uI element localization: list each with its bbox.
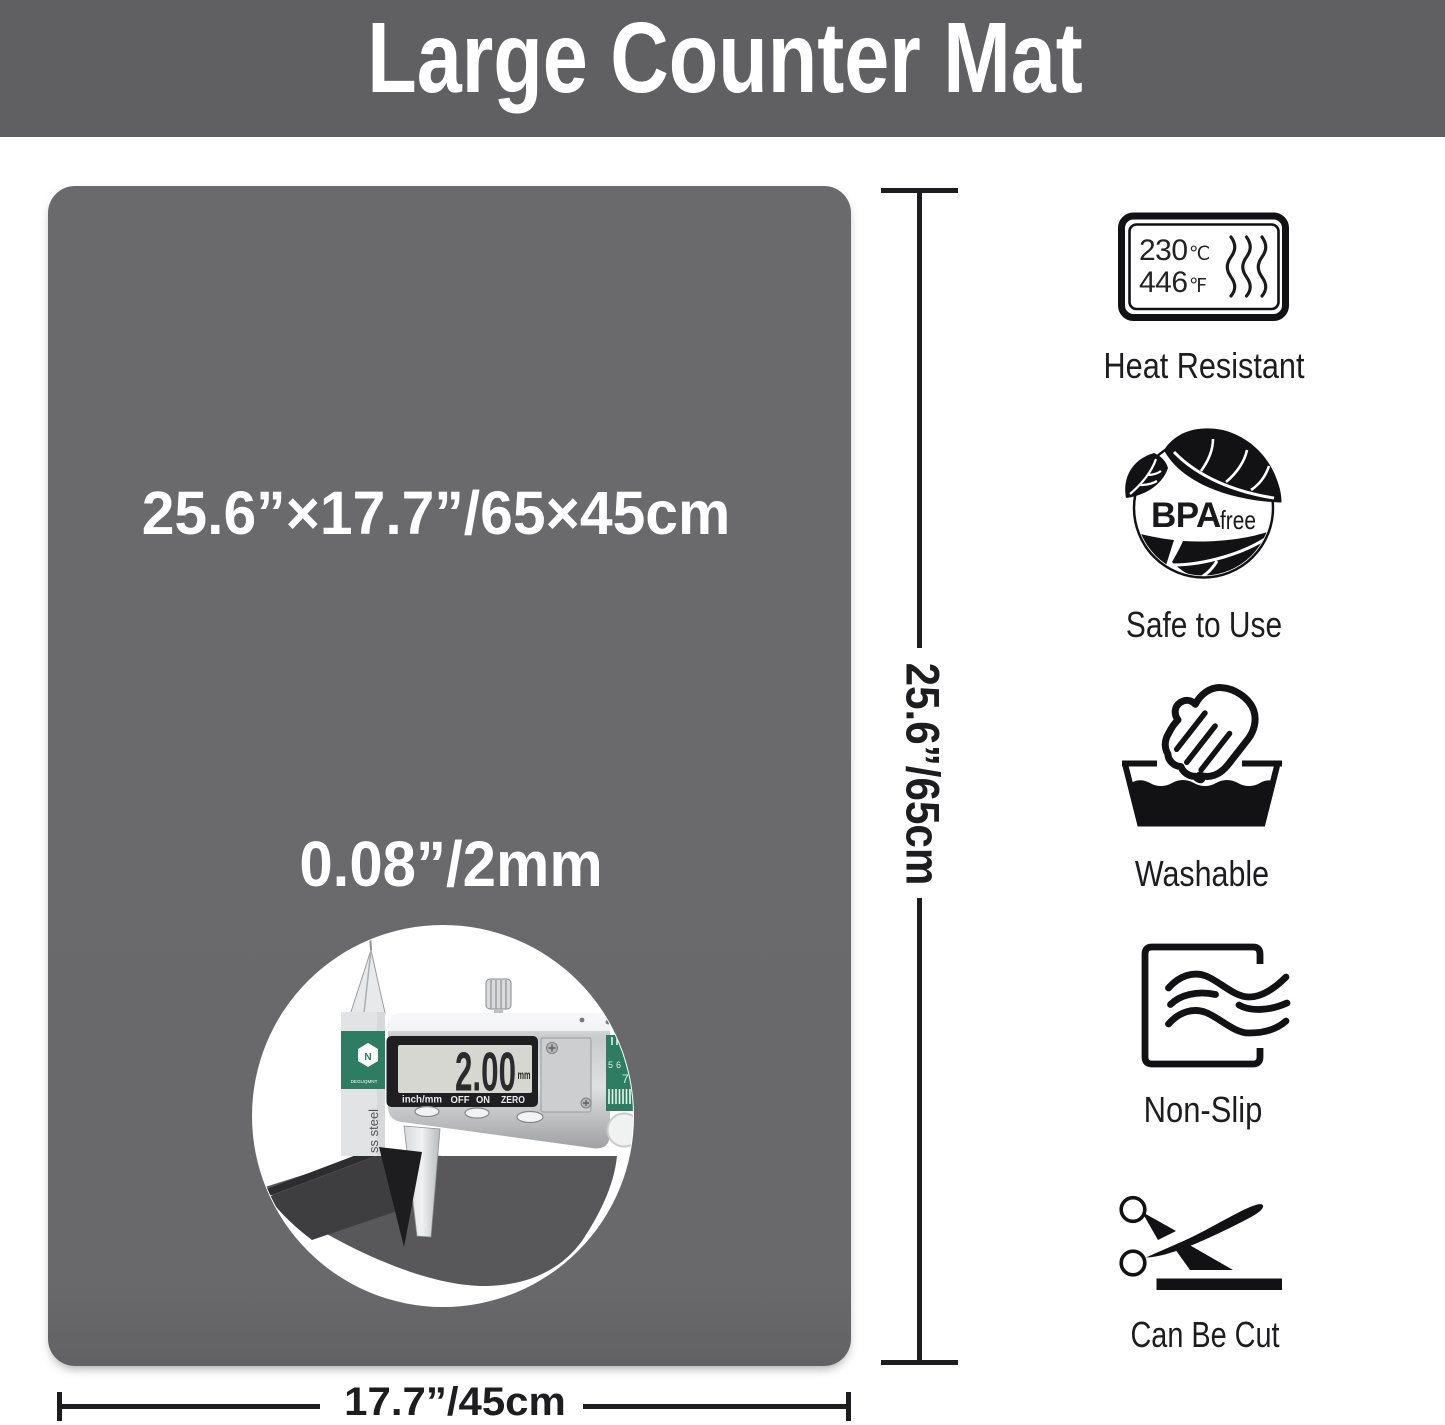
svg-text:mm: mm bbox=[518, 1068, 531, 1082]
svg-text:DEGUQMNT: DEGUQMNT bbox=[351, 1079, 378, 1084]
svg-text:446: 446 bbox=[1139, 266, 1188, 299]
svg-text:℉: ℉ bbox=[1189, 276, 1207, 297]
svg-text:OFF: OFF bbox=[451, 1095, 470, 1106]
svg-text:ON: ON bbox=[476, 1095, 490, 1106]
svg-text:5: 5 bbox=[608, 1060, 613, 1070]
svg-text:7: 7 bbox=[622, 1072, 629, 1086]
svg-text:2.00: 2.00 bbox=[455, 1041, 516, 1103]
svg-text:inch/mm: inch/mm bbox=[402, 1095, 442, 1106]
svg-text:℃: ℃ bbox=[1189, 244, 1210, 265]
svg-text:230: 230 bbox=[1139, 234, 1188, 267]
svg-text:BPA: BPA bbox=[1151, 496, 1221, 535]
svg-text:ZERO: ZERO bbox=[501, 1095, 525, 1106]
svg-text:free: free bbox=[1220, 505, 1256, 535]
svg-text:6: 6 bbox=[616, 1060, 621, 1070]
svg-text:N: N bbox=[364, 1052, 371, 1063]
svg-text:ss steel: ss steel bbox=[366, 1109, 381, 1153]
